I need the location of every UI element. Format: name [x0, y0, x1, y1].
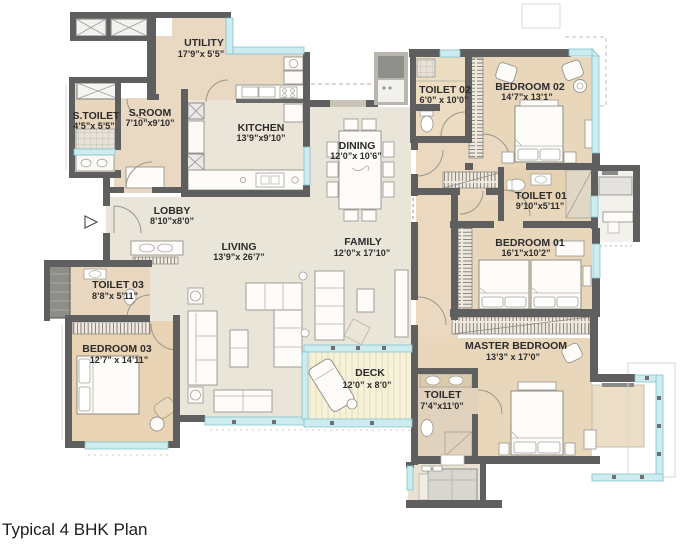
svg-text:9’10”x5’11”: 9’10”x5’11” [516, 201, 565, 211]
svg-text:13’3” x 17’0”: 13’3” x 17’0” [486, 352, 540, 362]
svg-text:TOILET 03: TOILET 03 [92, 279, 144, 291]
svg-text:13’9”x 26’7”: 13’9”x 26’7” [213, 252, 265, 262]
svg-text:12’0”x 17’10”: 12’0”x 17’10” [334, 248, 391, 258]
svg-text:MASTER BEDROOM: MASTER BEDROOM [465, 340, 567, 352]
svg-text:13’9”x9’10”: 13’9”x9’10” [236, 133, 285, 143]
svg-text:12’0” x 8’0”: 12’0” x 8’0” [342, 380, 391, 390]
svg-text:6’0” x 10’0”: 6’0” x 10’0” [419, 95, 468, 105]
svg-text:DECK: DECK [355, 367, 385, 379]
svg-text:17’9”x 5’5”: 17’9”x 5’5” [178, 49, 225, 59]
svg-text:UTILITY: UTILITY [184, 37, 224, 49]
svg-text:14’7”x 13’1”: 14’7”x 13’1” [501, 92, 553, 102]
svg-text:FAMILY: FAMILY [344, 236, 382, 248]
svg-text:7’4”x11’0”: 7’4”x11’0” [420, 401, 464, 411]
svg-text:8’8”x 5’11”: 8’8”x 5’11” [92, 291, 138, 301]
svg-text:7’10”x9’10”: 7’10”x9’10” [125, 118, 174, 128]
svg-text:16’1”x10’2”: 16’1”x10’2” [501, 248, 550, 258]
svg-text:8’10”x8’0”: 8’10”x8’0” [150, 216, 194, 226]
svg-text:BEDROOM 03: BEDROOM 03 [82, 343, 152, 355]
svg-text:12’7” x 14’11”: 12’7” x 14’11” [90, 355, 149, 365]
svg-text:TOILET: TOILET [424, 389, 462, 401]
svg-text:12’0”x 10’6”: 12’0”x 10’6” [330, 151, 382, 161]
svg-text:4’5”x 5’5”: 4’5”x 5’5” [73, 121, 115, 131]
